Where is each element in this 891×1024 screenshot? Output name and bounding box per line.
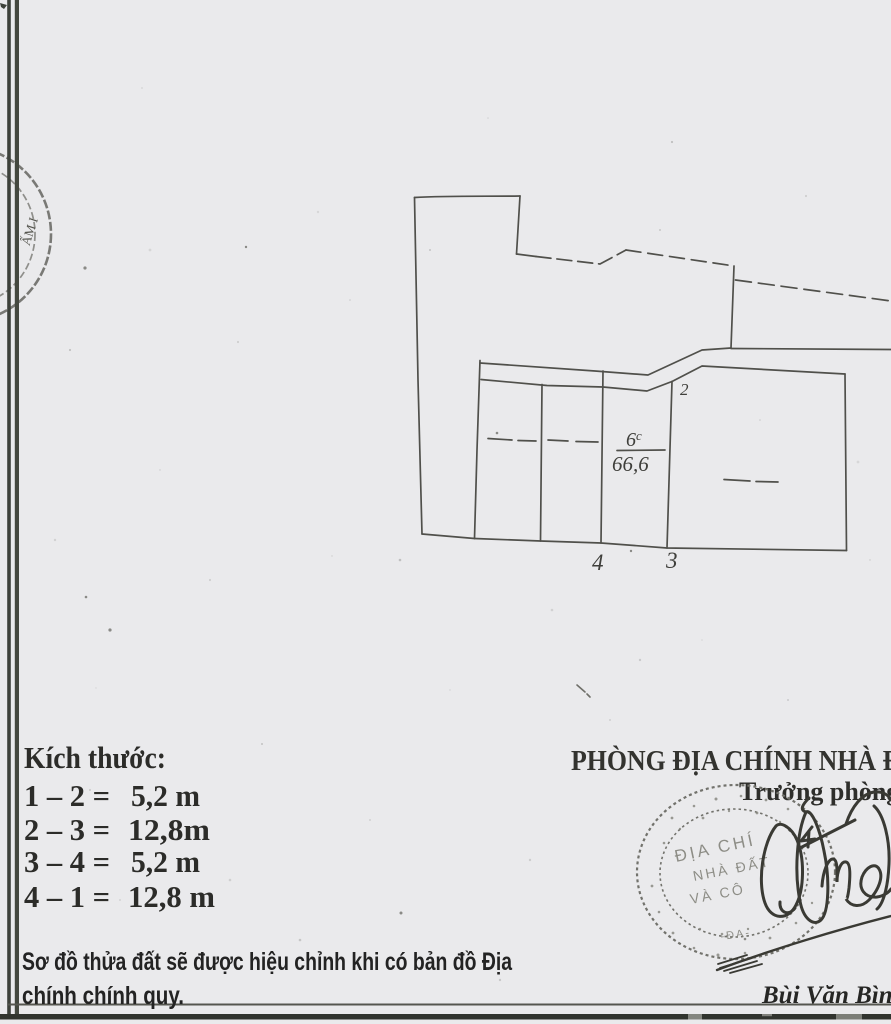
svg-text:5,2 m: 5,2 m	[131, 778, 200, 813]
svg-text:chính chính quy.: chính chính quy.	[22, 982, 184, 1010]
svg-text:12,8m: 12,8m	[128, 812, 210, 847]
svg-text:Trưởng phòng: Trưởng phòng	[739, 777, 891, 806]
svg-text:2: 2	[680, 380, 689, 399]
svg-text:1 – 2 =: 1 – 2 =	[24, 778, 110, 813]
svg-text:Bùi Văn Bình: Bùi Văn Bình	[761, 982, 891, 1009]
svg-text:2 – 3 =: 2 – 3 =	[24, 812, 110, 847]
svg-text:4 – 1 =: 4 – 1 =	[24, 879, 110, 914]
svg-text:12,8 m: 12,8 m	[128, 879, 215, 914]
svg-text:3 – 4 =: 3 – 4 =	[24, 844, 110, 879]
svg-text:3: 3	[665, 548, 678, 573]
svg-text:66,6: 66,6	[612, 452, 649, 476]
svg-text:PHÒNG ĐỊA CHÍNH NHÀ ĐẤT: PHÒNG ĐỊA CHÍNH NHÀ ĐẤT	[571, 745, 891, 777]
svg-text:4: 4	[592, 550, 604, 575]
svg-text:Sơ đồ thửa đất sẽ được hiệu ch: Sơ đồ thửa đất sẽ được hiệu chỉnh khi có…	[22, 948, 513, 976]
svg-text:Kích thước:: Kích thước:	[24, 740, 166, 775]
svg-text:5,2 m: 5,2 m	[131, 844, 200, 879]
